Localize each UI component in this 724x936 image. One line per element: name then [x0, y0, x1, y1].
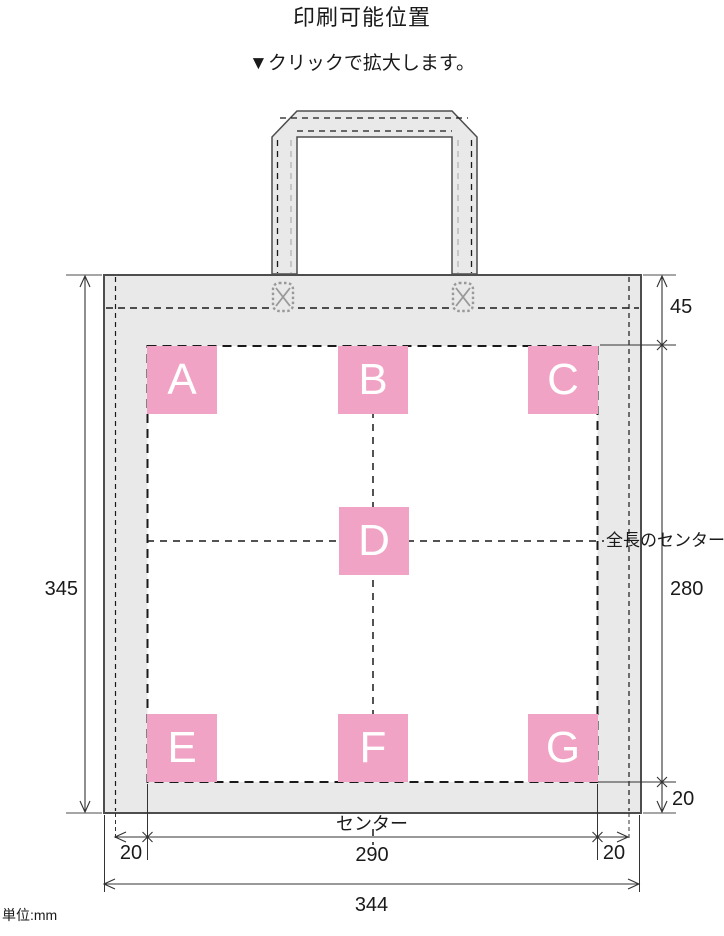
- print-position-e[interactable]: E: [147, 714, 217, 782]
- dim-side-left: 20: [112, 843, 150, 863]
- dim-bottom-seam: 20: [672, 789, 694, 809]
- dim-side-right: 20: [596, 843, 632, 863]
- stitch-box-right-icon: [453, 283, 473, 311]
- dim-print-width: 290: [147, 845, 597, 865]
- printable-position-diagram[interactable]: 印刷可能位置 ▼クリックで拡大します。: [0, 0, 724, 936]
- bag-handle: [272, 111, 477, 274]
- dim-bag-width: 344: [104, 895, 639, 915]
- full-length-center-label: 全長のセンター: [606, 531, 724, 550]
- dim-print-height: 280: [670, 579, 703, 599]
- strap-stitch-dashes-black: [278, 140, 472, 273]
- unit-note: 単位:mm: [2, 905, 57, 925]
- dim-top-seam: 45: [670, 297, 692, 317]
- print-position-b[interactable]: B: [338, 346, 408, 414]
- print-position-g[interactable]: G: [528, 714, 598, 782]
- strap-stitch-dashes-gray: [291, 140, 458, 273]
- dim-bag-height: 345: [36, 579, 78, 599]
- bag-diagram-svg: [0, 0, 724, 936]
- print-position-c[interactable]: C: [528, 346, 598, 414]
- stitch-box-left-icon: [273, 283, 293, 311]
- dim-line-345: [80, 276, 90, 812]
- print-position-a[interactable]: A: [147, 346, 217, 414]
- center-label: センター: [147, 815, 597, 833]
- print-position-d[interactable]: D: [339, 507, 409, 575]
- dim-line-344: [104, 879, 639, 889]
- print-position-f[interactable]: F: [338, 714, 408, 782]
